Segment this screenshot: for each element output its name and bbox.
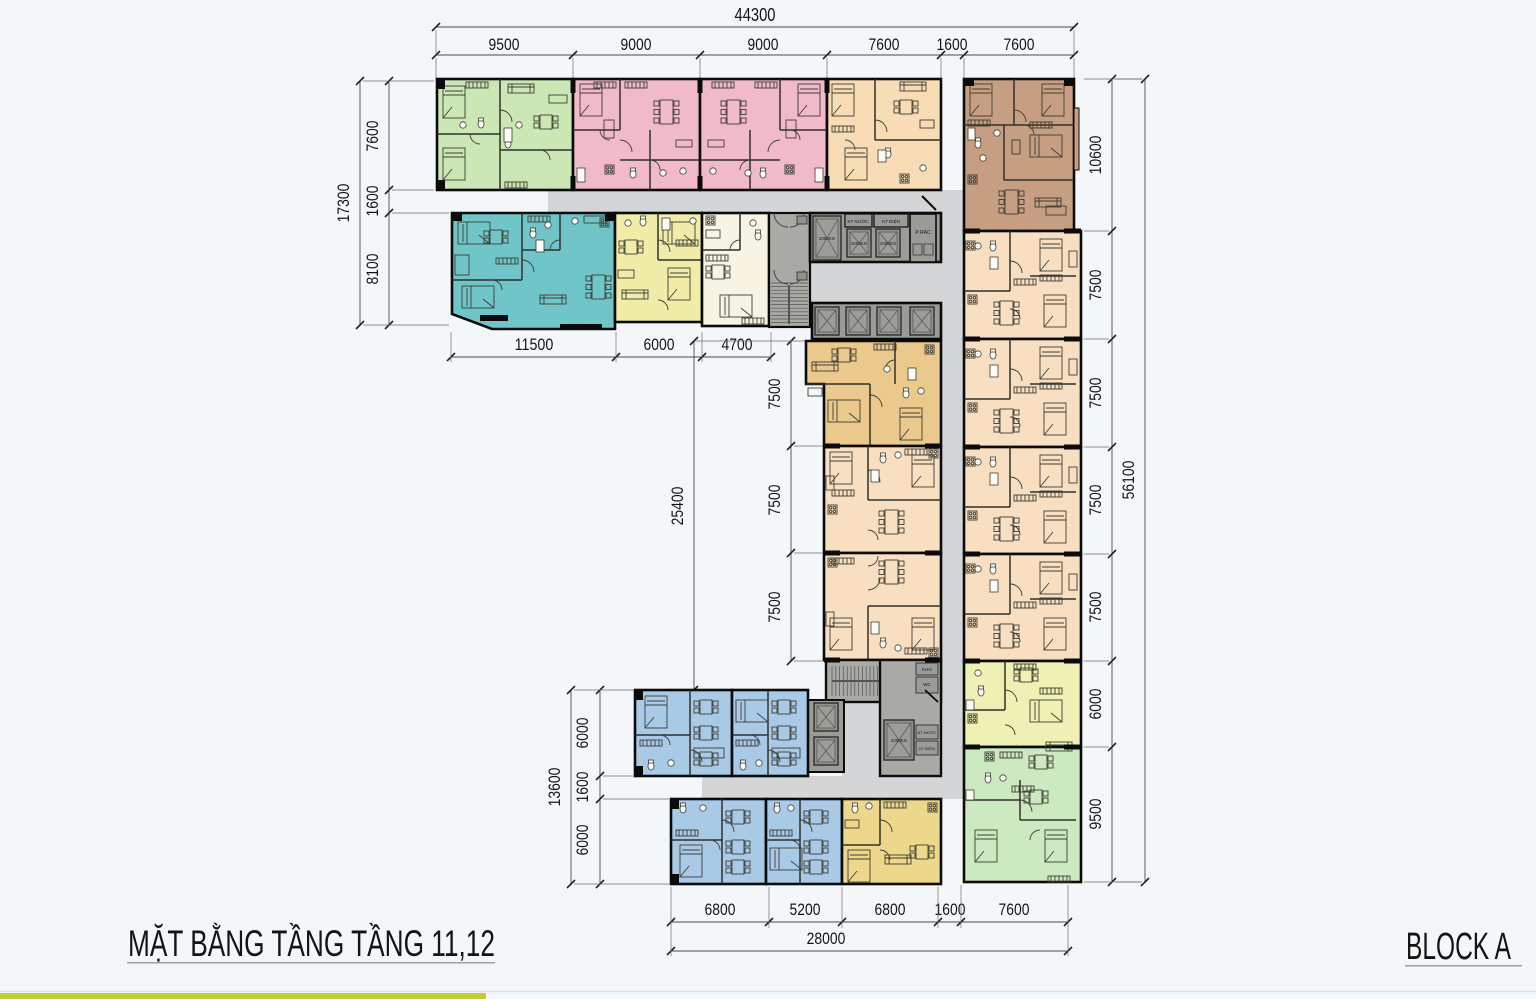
svg-text:1600: 1600 <box>573 772 592 803</box>
svg-text:17300: 17300 <box>334 184 353 223</box>
svg-text:44300: 44300 <box>735 5 776 25</box>
svg-text:WC: WC <box>923 682 931 687</box>
svg-text:7600: 7600 <box>1004 35 1035 54</box>
svg-text:6000: 6000 <box>573 718 592 749</box>
svg-text:KHO: KHO <box>922 667 932 672</box>
svg-text:7500: 7500 <box>765 379 784 410</box>
svg-text:9500: 9500 <box>489 35 520 54</box>
svg-text:9000: 9000 <box>621 35 652 54</box>
svg-text:1000KG: 1000KG <box>851 241 868 246</box>
svg-text:7600: 7600 <box>999 900 1030 919</box>
svg-text:6800: 6800 <box>875 900 906 919</box>
svg-text:KT ĐIỆN: KT ĐIỆN <box>919 746 935 751</box>
svg-text:7500: 7500 <box>765 592 784 623</box>
svg-text:6000: 6000 <box>573 825 592 856</box>
svg-text:7600: 7600 <box>869 35 900 54</box>
svg-text:7600: 7600 <box>363 121 382 152</box>
svg-text:7500: 7500 <box>1086 485 1105 516</box>
svg-text:BLOCK A: BLOCK A <box>1406 926 1511 968</box>
svg-text:1600: 1600 <box>937 35 968 54</box>
svg-text:13600: 13600 <box>545 768 564 807</box>
svg-text:10600: 10600 <box>1086 136 1105 175</box>
svg-text:8100: 8100 <box>363 254 382 285</box>
svg-text:1000KG: 1000KG <box>891 738 908 743</box>
svg-text:1000KG: 1000KG <box>819 236 836 241</box>
svg-text:5200: 5200 <box>790 900 821 919</box>
svg-text:7500: 7500 <box>1086 592 1105 623</box>
svg-text:6000: 6000 <box>1086 689 1105 720</box>
svg-text:9000: 9000 <box>748 35 779 54</box>
svg-text:KT NƯỚC: KT NƯỚC <box>918 730 937 735</box>
svg-text:7500: 7500 <box>1086 378 1105 409</box>
svg-text:4700: 4700 <box>722 335 753 354</box>
svg-text:7500: 7500 <box>765 485 784 516</box>
svg-text:MẶT BẰNG TẦNG TẦNG 11,12: MẶT BẰNG TẦNG TẦNG 11,12 <box>128 923 495 964</box>
svg-text:KT ĐIỆN: KT ĐIỆN <box>882 217 900 224</box>
svg-text:6800: 6800 <box>705 900 736 919</box>
svg-text:6000: 6000 <box>644 335 675 354</box>
svg-text:56100: 56100 <box>1119 461 1138 500</box>
svg-text:1000KG: 1000KG <box>880 241 897 246</box>
svg-text:KT NƯỚC: KT NƯỚC <box>847 218 869 224</box>
svg-text:11500: 11500 <box>515 335 554 354</box>
svg-text:7500: 7500 <box>1086 270 1105 301</box>
svg-text:1600: 1600 <box>363 186 382 217</box>
svg-text:25400: 25400 <box>668 487 687 526</box>
svg-text:28000: 28000 <box>807 929 846 948</box>
svg-text:9500: 9500 <box>1086 799 1105 830</box>
svg-text:P RÁC: P RÁC <box>915 229 931 236</box>
